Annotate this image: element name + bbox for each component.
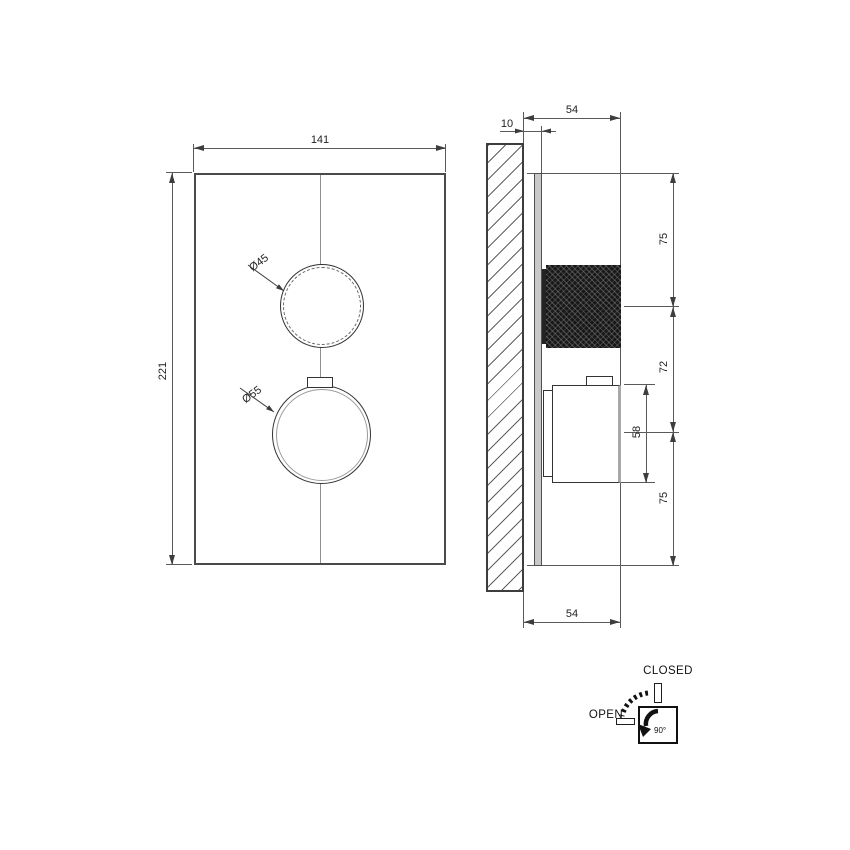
dim-141-line	[194, 148, 446, 149]
dim-58-ext-bottom	[621, 482, 655, 483]
plate-bottom-extension	[527, 565, 679, 566]
technical-drawing-canvas: 141 221 Ø45 Ø55 54 10 54 75	[0, 0, 850, 850]
volume-knob-inner-ring	[276, 389, 368, 481]
dim-58-label: 58	[630, 417, 644, 447]
plate-side-profile	[534, 173, 542, 566]
dim-54-top-label: 54	[557, 103, 587, 117]
dim-141-label: 141	[295, 133, 345, 147]
plate-top-extension	[527, 173, 679, 174]
dim-75-top-label: 75	[657, 224, 671, 254]
dim-54-bottom-line	[524, 622, 620, 623]
dim-58-ext-top	[624, 384, 655, 385]
dim-chain-line	[673, 173, 674, 566]
volume-knob-lever-tab-front	[307, 377, 333, 388]
open-lever-icon	[616, 718, 635, 725]
dim-10-label: 10	[496, 117, 518, 131]
dim-54-bottom-label: 54	[557, 607, 587, 621]
dim-58-line	[646, 385, 647, 483]
dim-75-bottom-label: 75	[657, 483, 671, 513]
dim-10-line	[500, 131, 556, 132]
wall-section-hatched	[486, 143, 524, 592]
volume-knob-lever-tab-side	[586, 376, 613, 386]
thermostat-centerline-extension	[624, 306, 679, 307]
thermostat-knob-knurl-ring	[283, 267, 361, 345]
dim-221-ext-bottom	[166, 564, 192, 565]
rotation-angle-label: 90°	[654, 726, 666, 735]
thermostat-knob-side-knurled	[546, 265, 621, 348]
dim-221-line	[172, 173, 173, 565]
volume-knob-side	[552, 385, 621, 483]
dim-54-top-ext	[523, 112, 524, 143]
plate-front-extension	[541, 126, 542, 173]
dim-221-ext-top	[166, 172, 192, 173]
closed-label: CLOSED	[633, 665, 703, 677]
dim-221-label: 221	[156, 356, 170, 386]
rotation-box	[638, 706, 678, 744]
thermostat-knob-circle	[280, 264, 364, 348]
dim-54-top-line	[524, 118, 620, 119]
closed-lever-icon	[654, 683, 662, 703]
front-plate-centerline	[320, 175, 321, 563]
dim-72-label: 72	[657, 352, 671, 382]
volume-knob-circle	[272, 385, 371, 484]
knob-front-plane-line	[620, 112, 621, 628]
